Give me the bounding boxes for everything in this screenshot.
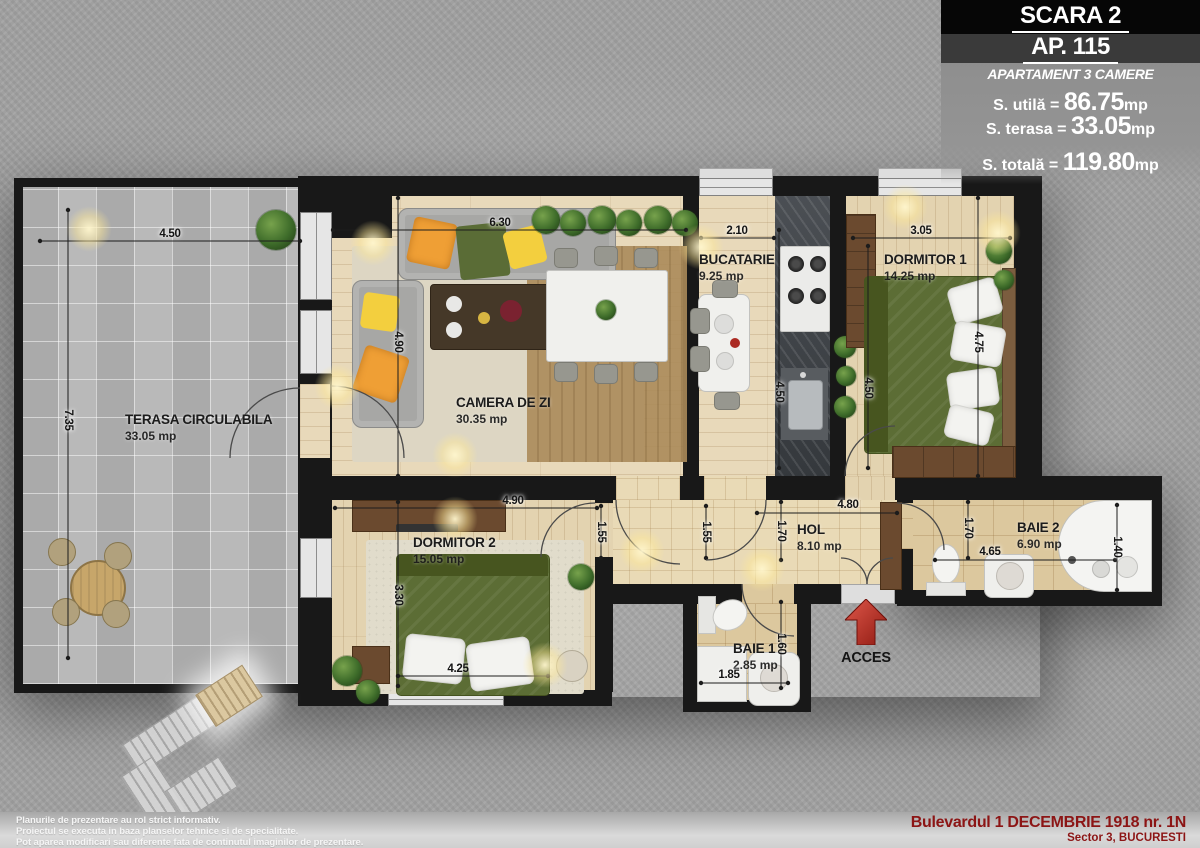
room-label-bath1: BAIE 12.85 mp	[733, 640, 778, 673]
area-terrace-value: 33.05	[1071, 112, 1131, 140]
dim-hall-width: 4.80	[837, 499, 858, 511]
disclaimer-text: Planurile de prezentare au rol strict in…	[16, 815, 363, 848]
info-panel-ap-band: AP. 115	[941, 34, 1200, 63]
room-label-bedroom1: DORMITOR 114.25 mp	[884, 251, 967, 284]
light-glow-living-top	[350, 220, 396, 266]
scara-title: SCARA 2	[1012, 2, 1129, 33]
dim-kitchen-top: 2.10	[726, 225, 747, 237]
address-line-1: Bulevardul 1 DECEMBRIE 1918 nr. 1N	[911, 814, 1186, 832]
dim-living-top: 6.30	[489, 217, 510, 229]
disclaimer-line-2: Proiectul se executa in baza planselor t…	[16, 826, 363, 837]
dim-bath1-width: 1.85	[718, 669, 739, 681]
light-glow-hall-2	[739, 546, 785, 592]
light-glow-bedroom2	[522, 642, 568, 688]
area-total-line: S. totală = 119.80mp	[941, 148, 1200, 177]
area-terrace-unit: mp	[1131, 121, 1155, 138]
light-glow-bedroom1-corner	[975, 210, 1021, 256]
area-total-label: S. totală =	[982, 157, 1062, 174]
area-terrace-line: S. terasa = 33.05mp	[941, 112, 1200, 141]
apartment-type: APARTAMENT 3 CAMERE	[941, 66, 1200, 82]
room-label-hall: HOL8.10 mp	[797, 521, 842, 554]
site-plan-miniature	[105, 678, 290, 813]
room-label-terrace: TERASA CIRCULABILA33.05 mp	[125, 411, 272, 444]
room-label-kitchen: BUCATARIE9.25 mp	[699, 251, 775, 284]
floor-plan-page: TERASA CIRCULABILA33.05 mp CAMERA DE ZI3…	[0, 0, 1200, 848]
dim-hall-left: 1.55	[700, 521, 712, 542]
disclaimer-line-1: Planurile de prezentare au rol strict in…	[16, 815, 363, 826]
room-label-bath2: BAIE 26.90 mp	[1017, 519, 1062, 552]
disclaimer-line-3: Pot aparea modificari sau diferente fata…	[16, 837, 363, 848]
dim-bath2-width: 4.65	[979, 546, 1000, 558]
access-arrow-icon	[845, 599, 887, 645]
footer-strip: Planurile de prezentare au rol strict in…	[0, 812, 1200, 848]
area-terrace-label: S. terasa =	[986, 121, 1071, 138]
dim-terrace-left: 7.35	[62, 409, 74, 430]
access-label: ACCES	[841, 650, 891, 666]
room-label-bedroom2: DORMITOR 215.05 mp	[413, 534, 496, 567]
area-total-unit: mp	[1135, 157, 1159, 174]
dim-terrace-top: 4.50	[159, 228, 180, 240]
dim-bedroom1-right: 4.75	[972, 331, 984, 352]
dim-hall-entry: 1.70	[775, 520, 787, 541]
light-glow-hall-1	[619, 528, 665, 574]
dim-bedroom2-height: 3.30	[392, 584, 404, 605]
room-label-living: CAMERA DE ZI30.35 mp	[456, 394, 551, 427]
project-address: Bulevardul 1 DECEMBRIE 1918 nr. 1N Secto…	[911, 814, 1186, 846]
light-glow-living-wall	[314, 364, 360, 410]
light-glow-terrace	[66, 206, 112, 252]
dim-bedroom2-right: 1.55	[595, 521, 607, 542]
dim-bedroom1-top: 3.05	[910, 225, 931, 237]
dim-bath1-height: 1.60	[775, 633, 787, 654]
dim-kitchen-height: 4.50	[773, 381, 785, 402]
dim-bedroom2-top: 4.90	[502, 495, 523, 507]
dim-bedroom2-bed: 4.25	[447, 663, 468, 675]
address-line-2: Sector 3, BUCURESTI	[911, 832, 1186, 845]
area-total-value: 119.80	[1063, 148, 1135, 176]
dim-living-height: 4.90	[392, 331, 404, 352]
info-panel-scara-band: SCARA 2	[941, 0, 1200, 34]
info-panel: SCARA 2 AP. 115 APARTAMENT 3 CAMERE S. u…	[941, 0, 1200, 184]
light-glow-living-tv	[432, 432, 478, 478]
dim-bath2-right: 1.40	[1111, 536, 1123, 557]
light-glow-bedroom1-top	[882, 184, 928, 230]
dim-bedroom1-height: 4.50	[862, 377, 874, 398]
apartment-number: AP. 115	[1023, 33, 1118, 64]
dim-bath2-left: 1.70	[962, 517, 974, 538]
